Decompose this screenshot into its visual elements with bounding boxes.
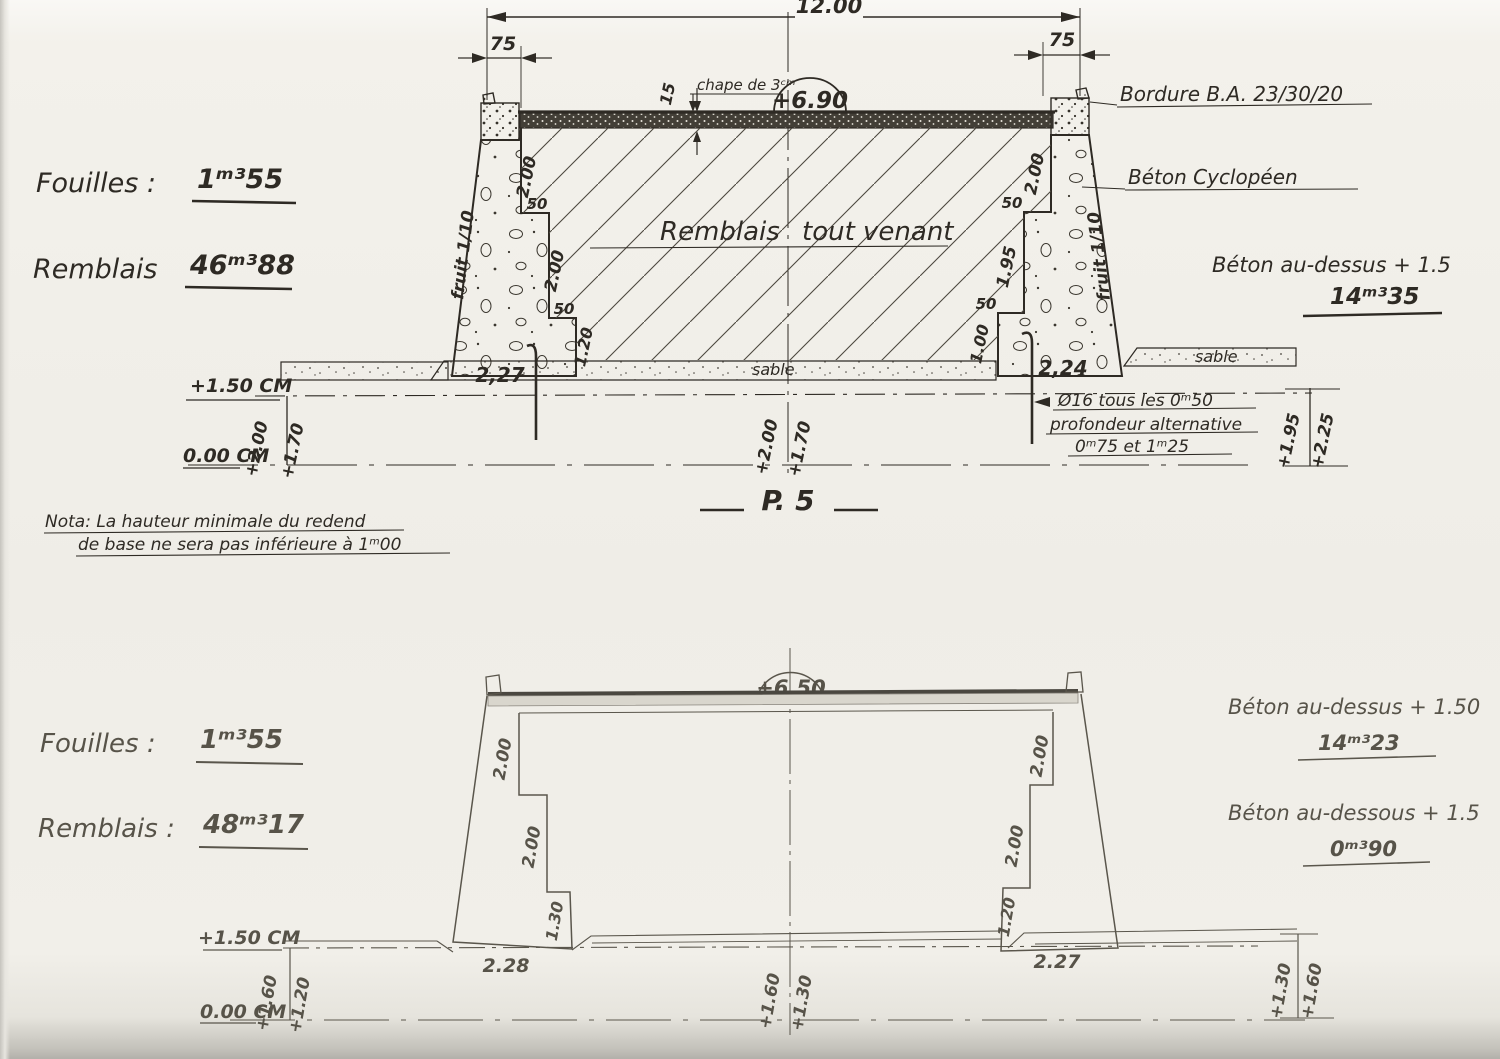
svg-text:Béton au-dessous + 1.5: Béton au-dessous + 1.5	[1228, 801, 1480, 825]
remblais-label: Remblais	[33, 254, 157, 285]
svg-text:50: 50	[554, 300, 575, 318]
curb-right-width: 75	[1049, 29, 1075, 51]
svg-text:1.20: 1.20	[994, 896, 1020, 938]
svg-text:+1.70: +1.70	[784, 419, 815, 478]
curb-left-width: 75	[490, 33, 516, 55]
remblais-label-bottom: Remblais :	[38, 814, 175, 844]
svg-text:Béton au-dessus + 1.5: Béton au-dessus + 1.5	[1212, 253, 1451, 277]
svg-text:50: 50	[527, 195, 548, 213]
fouilles-underline	[192, 201, 296, 203]
svg-text:de base ne sera pas inférieure: de base ne sera pas inférieure à 1ᵐ00	[78, 535, 401, 555]
beton-dessus-annotation-bottom: Béton au-dessus + 1.50 14ᵐ³23	[1228, 695, 1480, 760]
section-title: P. 5	[700, 484, 878, 517]
chape-note-leader	[689, 94, 782, 112]
svg-text:2.00: 2.00	[490, 737, 517, 782]
svg-text:Bordure B.A. 23/30/20: Bordure B.A. 23/30/20	[1120, 82, 1343, 106]
svg-text:2.00: 2.00	[1002, 824, 1029, 869]
fouilles-underline-bottom	[196, 762, 303, 764]
level-dims-center: +2.00 +1.70	[751, 417, 815, 478]
slab-thickness-value: 15	[656, 81, 679, 107]
top-section-drawing: 12.00 75 75 +6.90	[33, 0, 1451, 556]
svg-text:1.30: 1.30	[542, 900, 568, 942]
curb-right-block	[1051, 88, 1089, 135]
scanned-drawing-sheet: 12.00 75 75 +6.90	[0, 0, 1500, 1059]
svg-text:2.00: 2.00	[1027, 734, 1054, 779]
technical-drawing-canvas: 12.00 75 75 +6.90	[0, 0, 1500, 1059]
remblais-underline	[185, 287, 292, 289]
svg-text:14ᵐ³23: 14ᵐ³23	[1318, 731, 1400, 755]
svg-text:50: 50	[976, 295, 997, 313]
svg-text:+1.30: +1.30	[1266, 962, 1295, 1021]
fill-label-remblais: Remblais	[660, 217, 780, 247]
nota-annotation: Nota: La hauteur minimale du redend de b…	[44, 512, 450, 556]
svg-text:2,24: 2,24	[1038, 356, 1087, 380]
svg-text:2.28: 2.28	[483, 955, 530, 977]
fouilles-label: Fouilles :	[36, 168, 156, 199]
sable-label-center: sable	[752, 360, 795, 379]
fill-label-tout-venant: tout venant	[802, 217, 954, 247]
svg-text:Béton Cyclopéen: Béton Cyclopéen	[1128, 165, 1298, 189]
remblais-value-bottom: 48ᵐ³17	[202, 810, 305, 840]
chape-note: chape de 3ᶜᵐ	[697, 76, 795, 94]
level-150-label-bottom: +1.50 CM	[198, 927, 300, 949]
curb-left-block	[481, 93, 519, 140]
rebar-note: Ø16 tous les 0ᵐ50 profondeur alternative…	[1034, 391, 1258, 457]
remblais-underline-bottom	[199, 847, 308, 849]
svg-text:2,27: 2,27	[475, 363, 524, 387]
overall-width-value: 12.00	[796, 0, 862, 18]
svg-text:2.27: 2.27	[1034, 951, 1082, 973]
right-wall-dimensions-bottom: 2.00 2.00 1.20 2.27	[994, 734, 1081, 973]
curb-nub-right-bottom	[1066, 672, 1083, 692]
bottom-section-drawing: +6.50 +1.50 CM 0.00 CM	[38, 648, 1480, 1035]
level-dims-center-bottom: +1.60 +1.30	[755, 972, 816, 1033]
level-dims-right-bottom: +1.30 +1.60	[1266, 962, 1326, 1021]
svg-text:+2.25: +2.25	[1307, 411, 1338, 470]
right-wall-outline-bottom	[1001, 694, 1118, 951]
svg-text:0ᵐ³90: 0ᵐ³90	[1330, 837, 1397, 861]
level-150-label: +1.50 CM	[190, 375, 292, 397]
level-dims-left: +2.00 +1.70	[241, 419, 308, 480]
slab-soffit-line	[519, 710, 1053, 713]
dimension-curb-left	[458, 46, 552, 108]
level-dims-right: +1.95 +2.25	[1273, 411, 1338, 470]
bordure-annotation: Bordure B.A. 23/30/20	[1090, 82, 1372, 107]
svg-text:0ᵐ75 et 1ᵐ25: 0ᵐ75 et 1ᵐ25	[1075, 437, 1189, 457]
svg-text:Nota: La hauteur minimale du r: Nota: La hauteur minimale du redend	[45, 512, 366, 532]
remblais-value: 46ᵐ³88	[189, 250, 295, 281]
svg-text:+1.95: +1.95	[1273, 411, 1304, 470]
svg-text:+1.60: +1.60	[1297, 962, 1326, 1021]
fouilles-value: 1ᵐ³55	[197, 164, 283, 195]
remblais-hatch-area	[521, 128, 1051, 360]
beton-dessous-annotation-bottom: Béton au-dessous + 1.5 0ᵐ³90	[1228, 801, 1480, 866]
roadway-slab	[520, 113, 1053, 128]
svg-text:2.00: 2.00	[519, 825, 546, 870]
fouilles-label-bottom: Fouilles :	[40, 729, 156, 759]
sable-label-right: sable	[1195, 347, 1238, 366]
svg-text:14ᵐ³35: 14ᵐ³35	[1330, 284, 1419, 310]
svg-text:Ø16 tous les 0ᵐ50: Ø16 tous les 0ᵐ50	[1057, 391, 1213, 411]
beton-dessus-annotation-top: Béton au-dessus + 1.5 14ᵐ³35	[1212, 253, 1451, 316]
beton-cyclopeen-annotation: Béton Cyclopéen	[1082, 165, 1358, 190]
svg-text:Béton au-dessus + 1.50: Béton au-dessus + 1.50	[1228, 695, 1480, 719]
fouilles-value-bottom: 1ᵐ³55	[200, 725, 283, 755]
svg-text:+1.60: +1.60	[755, 972, 784, 1031]
left-wall-dimensions-bottom: 2.00 2.00 1.30 2.28	[483, 737, 568, 977]
svg-text:P. 5: P. 5	[761, 484, 814, 517]
svg-text:+1.70: +1.70	[277, 421, 308, 480]
svg-text:+2.00: +2.00	[751, 417, 782, 476]
svg-text:50: 50	[1002, 194, 1023, 212]
svg-text:+1.30: +1.30	[787, 974, 816, 1033]
